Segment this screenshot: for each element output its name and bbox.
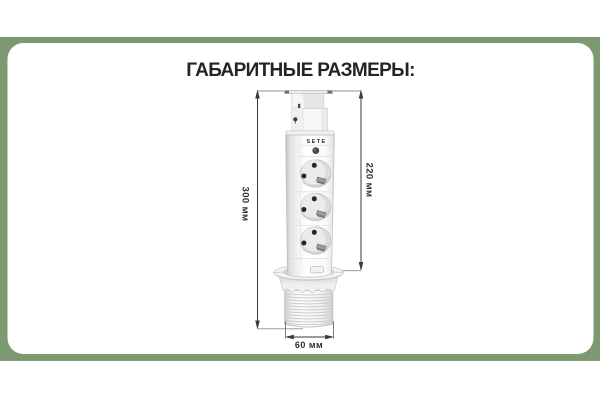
svg-text:300 мм: 300 мм: [239, 187, 250, 222]
svg-text:60 мм: 60 мм: [295, 340, 323, 350]
svg-text:220 мм: 220 мм: [364, 163, 375, 198]
svg-text:SETE: SETE: [307, 139, 327, 145]
svg-text:ГАБАРИТНЫЕ РАЗМЕРЫ:: ГАБАРИТНЫЕ РАЗМЕРЫ:: [186, 60, 415, 81]
